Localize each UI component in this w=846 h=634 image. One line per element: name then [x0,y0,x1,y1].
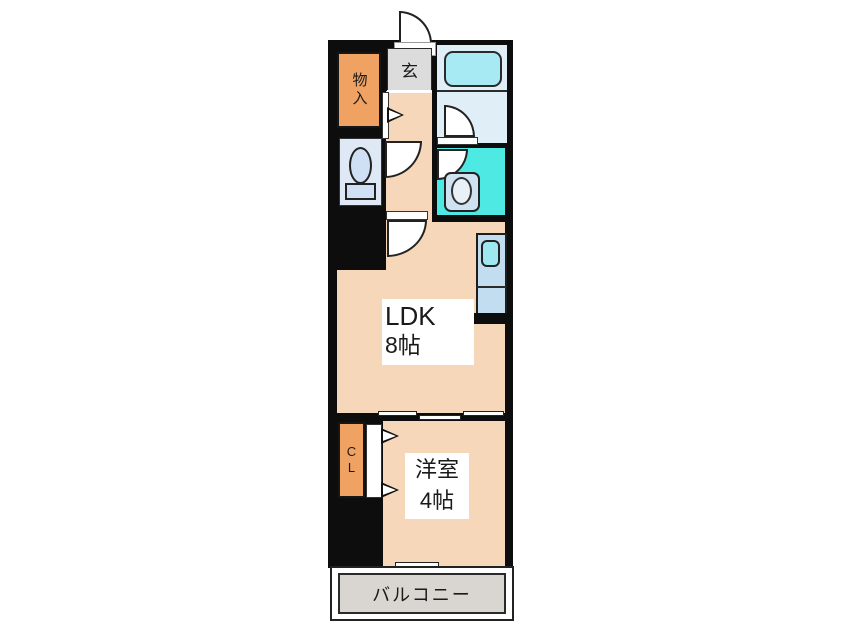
storage-room: 物入 [337,52,381,128]
ldk-floor-left [337,270,386,413]
balcony-label: バルコニー [372,581,472,607]
kitchen-sink-icon [481,240,500,267]
ldk-size-label: 8帖 [385,331,474,359]
bedroom-label: 洋室 [405,454,469,485]
closet-room: CL [338,422,365,498]
closet-label: CL [344,444,359,476]
toilet-icon [349,147,372,184]
kitchen-divider [477,286,506,288]
sink-bowl-icon [451,177,472,205]
bedroom-label-box: 洋室 4帖 [405,453,469,519]
entry-room: 玄 [387,48,432,91]
ldk-door-leaf [386,211,428,220]
bathtub-icon [444,51,502,87]
bathroom-door-leaf [437,137,478,145]
closet-door-leaf [366,424,382,498]
sliding-partition-panel [378,411,417,416]
entry-label: 玄 [401,57,418,82]
ldk-label: LDK [385,301,474,331]
entry-step [387,90,432,93]
bathroom-divider [437,90,507,92]
kitchen-wall-stub [473,313,513,324]
storage-label: 物入 [349,72,370,108]
toilet-tank-icon [345,183,376,200]
ldk-label-box: LDK 8帖 [382,299,474,365]
floorplan-canvas: 玄 物入 LDK 8帖 CL 洋室 4帖 [0,0,846,634]
bedroom-size-label: 4帖 [405,485,469,516]
sliding-partition-panel [419,415,461,420]
sliding-partition-panel [463,411,504,416]
balcony: バルコニー [338,573,506,614]
front-door-arc-icon [399,11,432,44]
